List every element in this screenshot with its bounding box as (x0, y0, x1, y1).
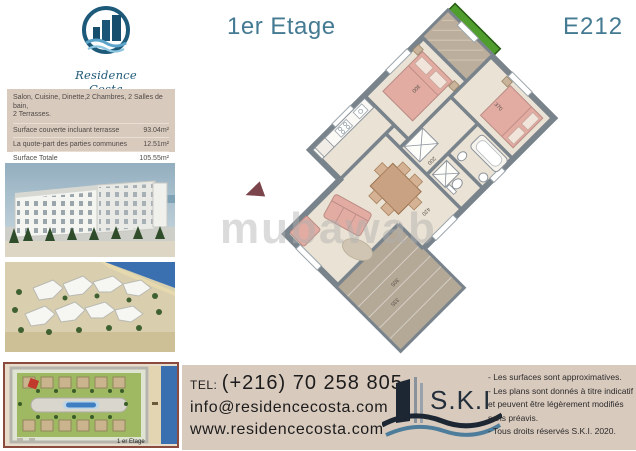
floor-plan: 370 300 200 420 305 335 (230, 0, 636, 368)
disclaimer-line: - Tous droits réservés S.K.I. 2020. (488, 425, 634, 439)
disclaimer-line: - Les plans sont donnés à titre indicati… (488, 385, 634, 399)
contact-block: TEL: (+216) 70 258 805 info@residencecos… (190, 372, 403, 439)
floor-plan-drawing: 370 300 200 420 305 335 (230, 0, 636, 368)
building-render-street-view (5, 163, 175, 257)
description-line: 2 Terrasses. (13, 111, 169, 120)
surface-value: 105.55m² (139, 155, 169, 162)
watermark: mubawab (220, 204, 437, 254)
footer-bar: TEL: (+216) 70 258 805 info@residencecos… (182, 365, 636, 450)
ski-name: S.K.I (430, 385, 491, 416)
description-line: Salon, Cuisine, Dinette,2 Chambres, 2 Sa… (13, 94, 169, 111)
surface-label: Surface Totale (13, 155, 58, 162)
disclaimer-notes: - Les surfaces sont approximatives. - Le… (488, 371, 634, 439)
surface-value: 12.51m² (143, 141, 169, 148)
residence-costa-logo-icon (76, 4, 136, 62)
site-plan: 1 er Etage (3, 362, 179, 448)
disclaimer-line: sans préavis. (488, 412, 634, 426)
website-url: www.residencecosta.com (190, 421, 403, 439)
phone-number: (+216) 70 258 805 (222, 372, 403, 394)
phone-line: TEL: (+216) 70 258 805 (190, 372, 403, 395)
tel-label: TEL: (190, 378, 217, 392)
unit-code: E212 (563, 13, 623, 41)
surface-value: 93.04m² (143, 127, 169, 134)
building-render-aerial-view (5, 262, 175, 352)
surface-row: La quote-part des parties communes 12.51… (13, 138, 169, 152)
brand-logo: Residence Costa (58, 4, 154, 96)
surface-label: La quote-part des parties communes (13, 141, 127, 148)
disclaimer-line: et peuvent être légèrement modifiés (488, 398, 634, 412)
surface-row: Surface couverte incluant terrasse 93.04… (13, 124, 169, 138)
site-plan-floor-label: 1 er Etage (117, 439, 145, 445)
disclaimer-line: - Les surfaces sont approximatives. (488, 371, 634, 385)
email-address: info@residencecosta.com (190, 399, 403, 417)
surface-info-box: Salon, Cuisine, Dinette,2 Chambres, 2 Sa… (7, 89, 175, 152)
apartment-description: Salon, Cuisine, Dinette,2 Chambres, 2 Sa… (13, 94, 169, 124)
surface-label: Surface couverte incluant terrasse (13, 127, 119, 134)
ski-logo: S.K.I (382, 369, 502, 445)
page-title: 1er Etage (227, 13, 336, 41)
flyer-page: { "header": { "title": "1er Etage", "uni… (0, 0, 636, 450)
